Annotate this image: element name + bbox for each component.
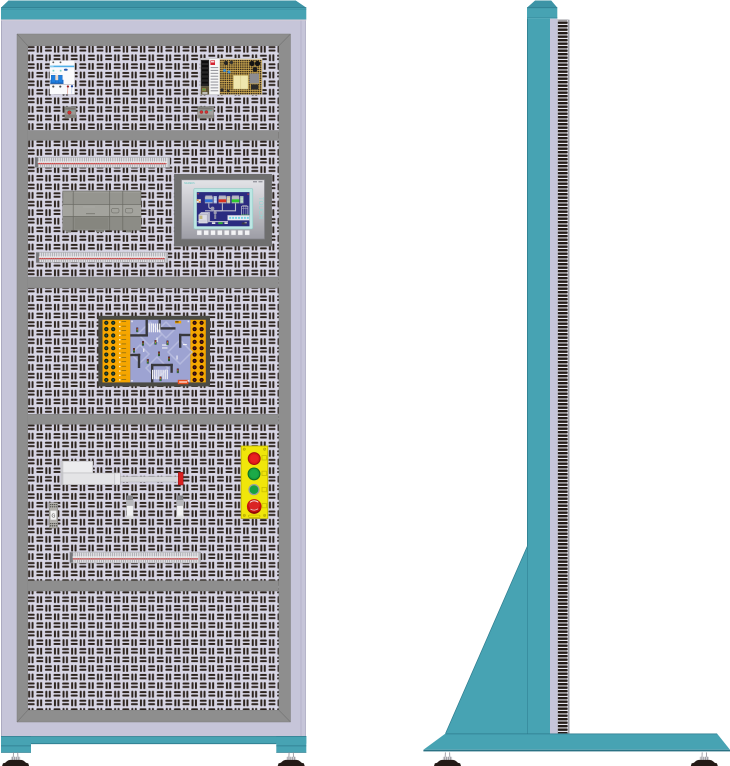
svg-text:SIEMENS: SIEMENS <box>184 182 195 185</box>
svg-text:TOUCH: TOUCH <box>257 197 264 219</box>
svg-text:G: G <box>52 514 56 520</box>
